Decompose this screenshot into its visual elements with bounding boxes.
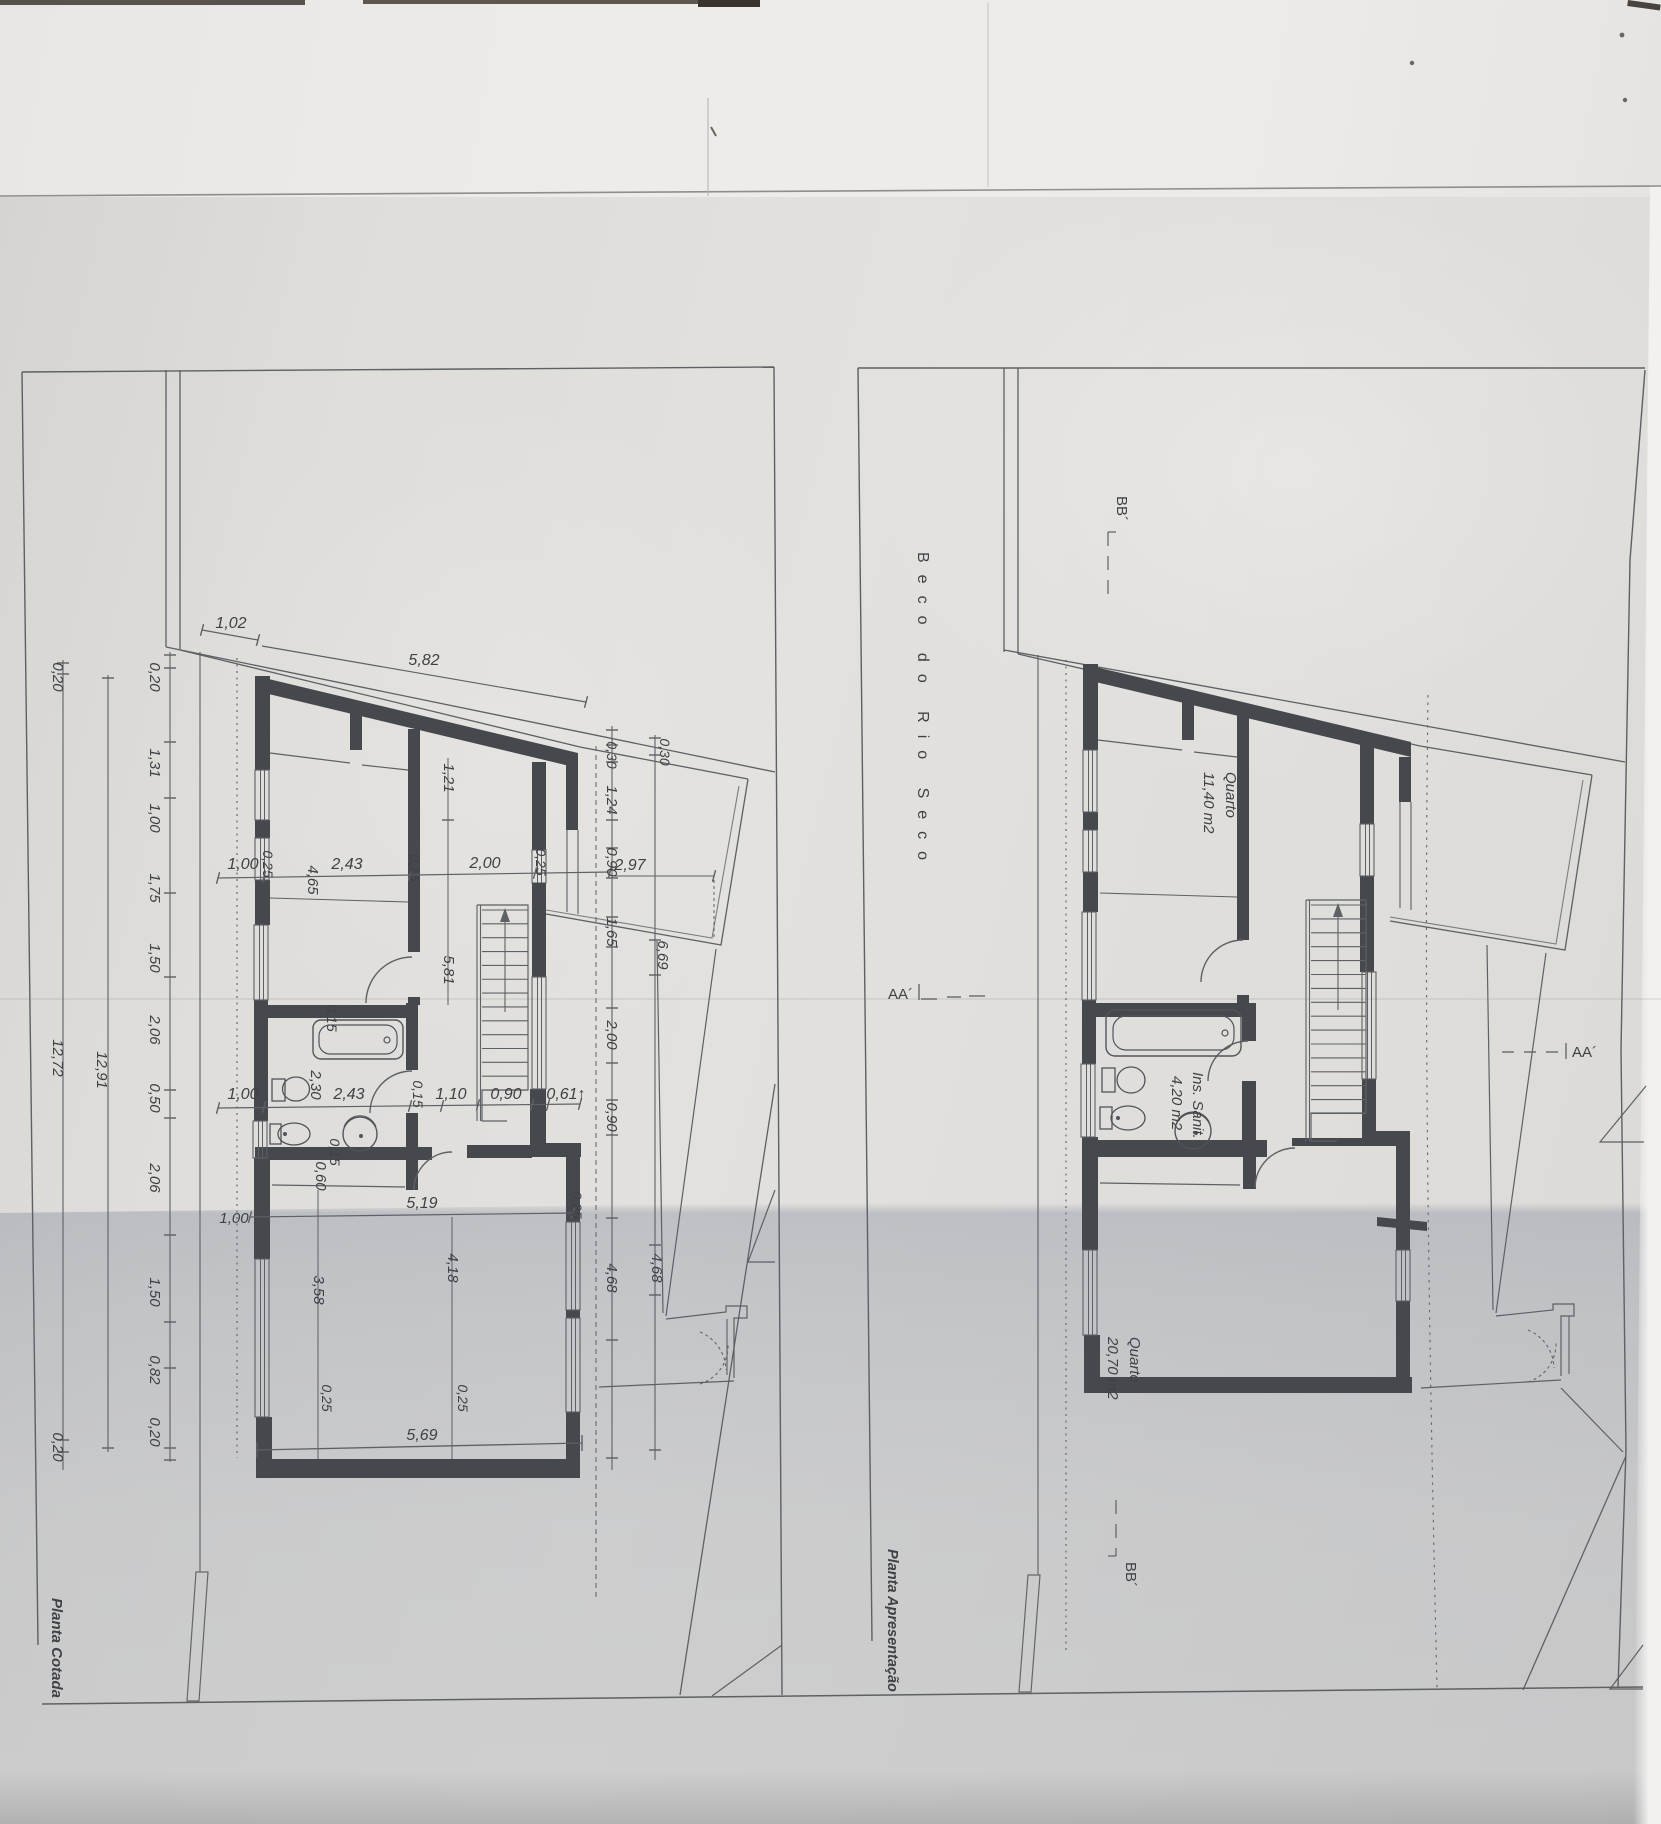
svg-text:0,15: 0,15 [410, 1080, 426, 1107]
svg-text:Quarto: Quarto [1126, 1337, 1143, 1383]
svg-text:1,21: 1,21 [440, 763, 457, 792]
svg-text:0,25: 0,25 [569, 1191, 585, 1218]
svg-text:4,65: 4,65 [304, 865, 321, 895]
svg-text:Beco do Rio Seco: Beco do Rio Seco [914, 552, 931, 872]
svg-text:5,81: 5,81 [440, 955, 457, 984]
svg-text:2,43: 2,43 [330, 856, 362, 873]
svg-text:0,60: 0,60 [312, 1161, 329, 1191]
svg-text:Planta Apresentação: Planta Apresentação [884, 1549, 900, 1692]
svg-text:BB´: BB´ [1113, 496, 1130, 521]
svg-text:4,20 m2: 4,20 m2 [1168, 1076, 1185, 1131]
svg-text:1,75: 1,75 [146, 873, 163, 903]
svg-text:AA´: AA´ [888, 986, 913, 1003]
svg-text:20,70 m2: 20,70 m2 [1104, 1336, 1121, 1400]
svg-text:1,02: 1,02 [215, 615, 246, 632]
svg-text:0,30: 0,30 [657, 738, 673, 765]
svg-text:1,00: 1,00 [219, 1210, 249, 1227]
svg-text:2,43: 2,43 [332, 1086, 364, 1103]
svg-text:0,20: 0,20 [146, 1417, 163, 1447]
svg-text:1,65: 1,65 [603, 917, 620, 947]
svg-text:5,82: 5,82 [408, 652, 439, 669]
svg-text:12,72: 12,72 [49, 1039, 66, 1077]
svg-text:1,50: 1,50 [146, 1277, 163, 1307]
svg-text:4,18: 4,18 [444, 1253, 461, 1283]
svg-text:2,06: 2,06 [146, 1014, 163, 1045]
svg-text:5,19: 5,19 [406, 1195, 437, 1212]
svg-text:0,20: 0,20 [49, 662, 66, 692]
svg-text:12,91: 12,91 [93, 1051, 110, 1089]
svg-text:0,20: 0,20 [49, 1432, 66, 1462]
svg-text:1,00: 1,00 [227, 1086, 258, 1103]
svg-text:5,69: 5,69 [406, 1427, 437, 1444]
svg-text:0,82: 0,82 [146, 1355, 163, 1385]
svg-text:1,24: 1,24 [603, 785, 620, 814]
svg-text:0,15: 0,15 [324, 1004, 340, 1031]
svg-text:Ins. Sanit.: Ins. Sanit. [1189, 1072, 1206, 1139]
svg-text:1,00: 1,00 [227, 856, 258, 873]
svg-text:2,06: 2,06 [146, 1162, 163, 1193]
svg-text:0,30: 0,30 [604, 741, 620, 768]
svg-text:11,40 m2: 11,40 m2 [1200, 772, 1217, 834]
svg-text:1,00: 1,00 [146, 803, 163, 833]
svg-text:0,90: 0,90 [603, 847, 620, 877]
svg-text:0,20: 0,20 [146, 662, 163, 692]
svg-text:0,25: 0,25 [319, 1384, 335, 1411]
svg-text:0,50: 0,50 [146, 1083, 163, 1113]
svg-text:Quarto: Quarto [1222, 772, 1239, 818]
svg-text:0,25: 0,25 [455, 1384, 471, 1411]
svg-text:2,00: 2,00 [603, 1019, 620, 1050]
svg-text:0,25: 0,25 [533, 848, 549, 875]
svg-text:BB´: BB´ [1122, 1562, 1139, 1587]
svg-text:4,68: 4,68 [603, 1263, 620, 1293]
svg-text:2,00: 2,00 [468, 855, 500, 872]
svg-text:1,10: 1,10 [435, 1086, 466, 1103]
svg-text:0,25: 0,25 [260, 850, 276, 877]
svg-text:0,15: 0,15 [407, 854, 423, 881]
svg-text:2,30: 2,30 [307, 1069, 324, 1100]
svg-text:0,61↑: 0,61↑ [546, 1086, 585, 1103]
svg-text:1,31: 1,31 [146, 748, 163, 777]
svg-text:0,90: 0,90 [490, 1086, 521, 1103]
svg-text:AA´: AA´ [1572, 1044, 1597, 1061]
svg-text:Planta Cotada: Planta Cotada [48, 1598, 65, 1698]
svg-text:3,58: 3,58 [310, 1275, 327, 1305]
svg-text:1,50: 1,50 [146, 943, 163, 973]
svg-text:0,90: 0,90 [603, 1102, 620, 1132]
